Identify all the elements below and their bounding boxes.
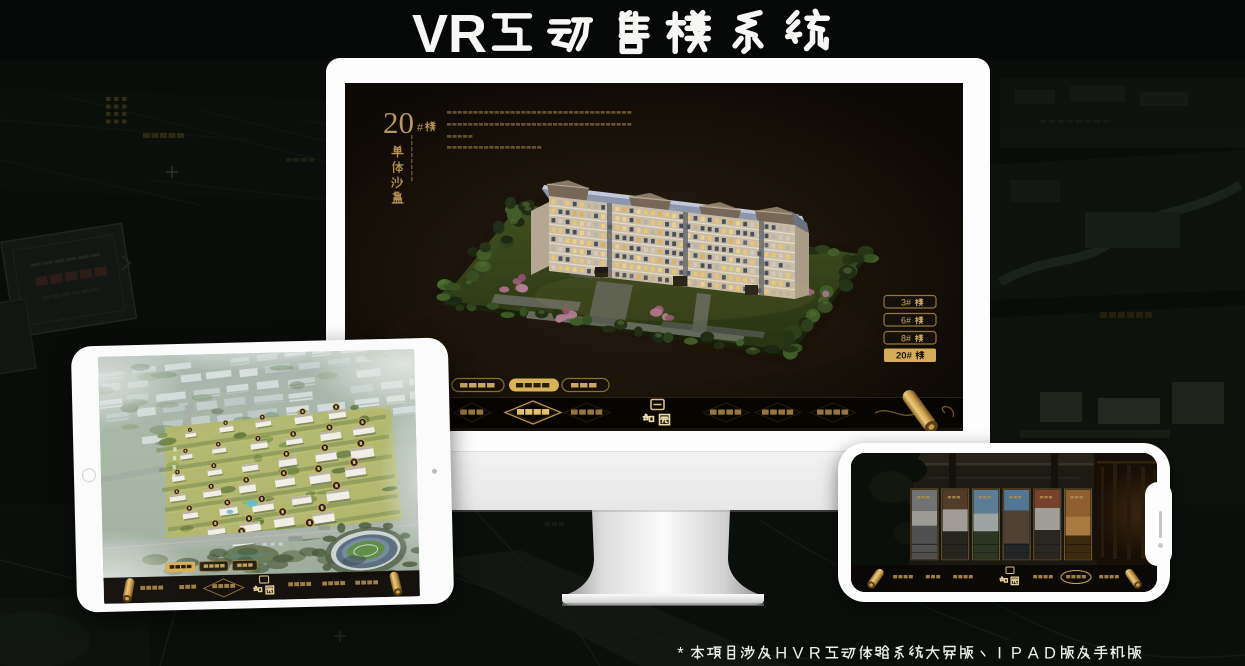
svg-text:20#: 20#	[896, 351, 913, 362]
svg-text:20: 20	[383, 105, 414, 140]
svg-text:3#: 3#	[901, 297, 911, 307]
svg-text:6#: 6#	[901, 315, 911, 325]
svg-text:8#: 8#	[901, 333, 911, 343]
svg-text:#: #	[417, 122, 424, 134]
